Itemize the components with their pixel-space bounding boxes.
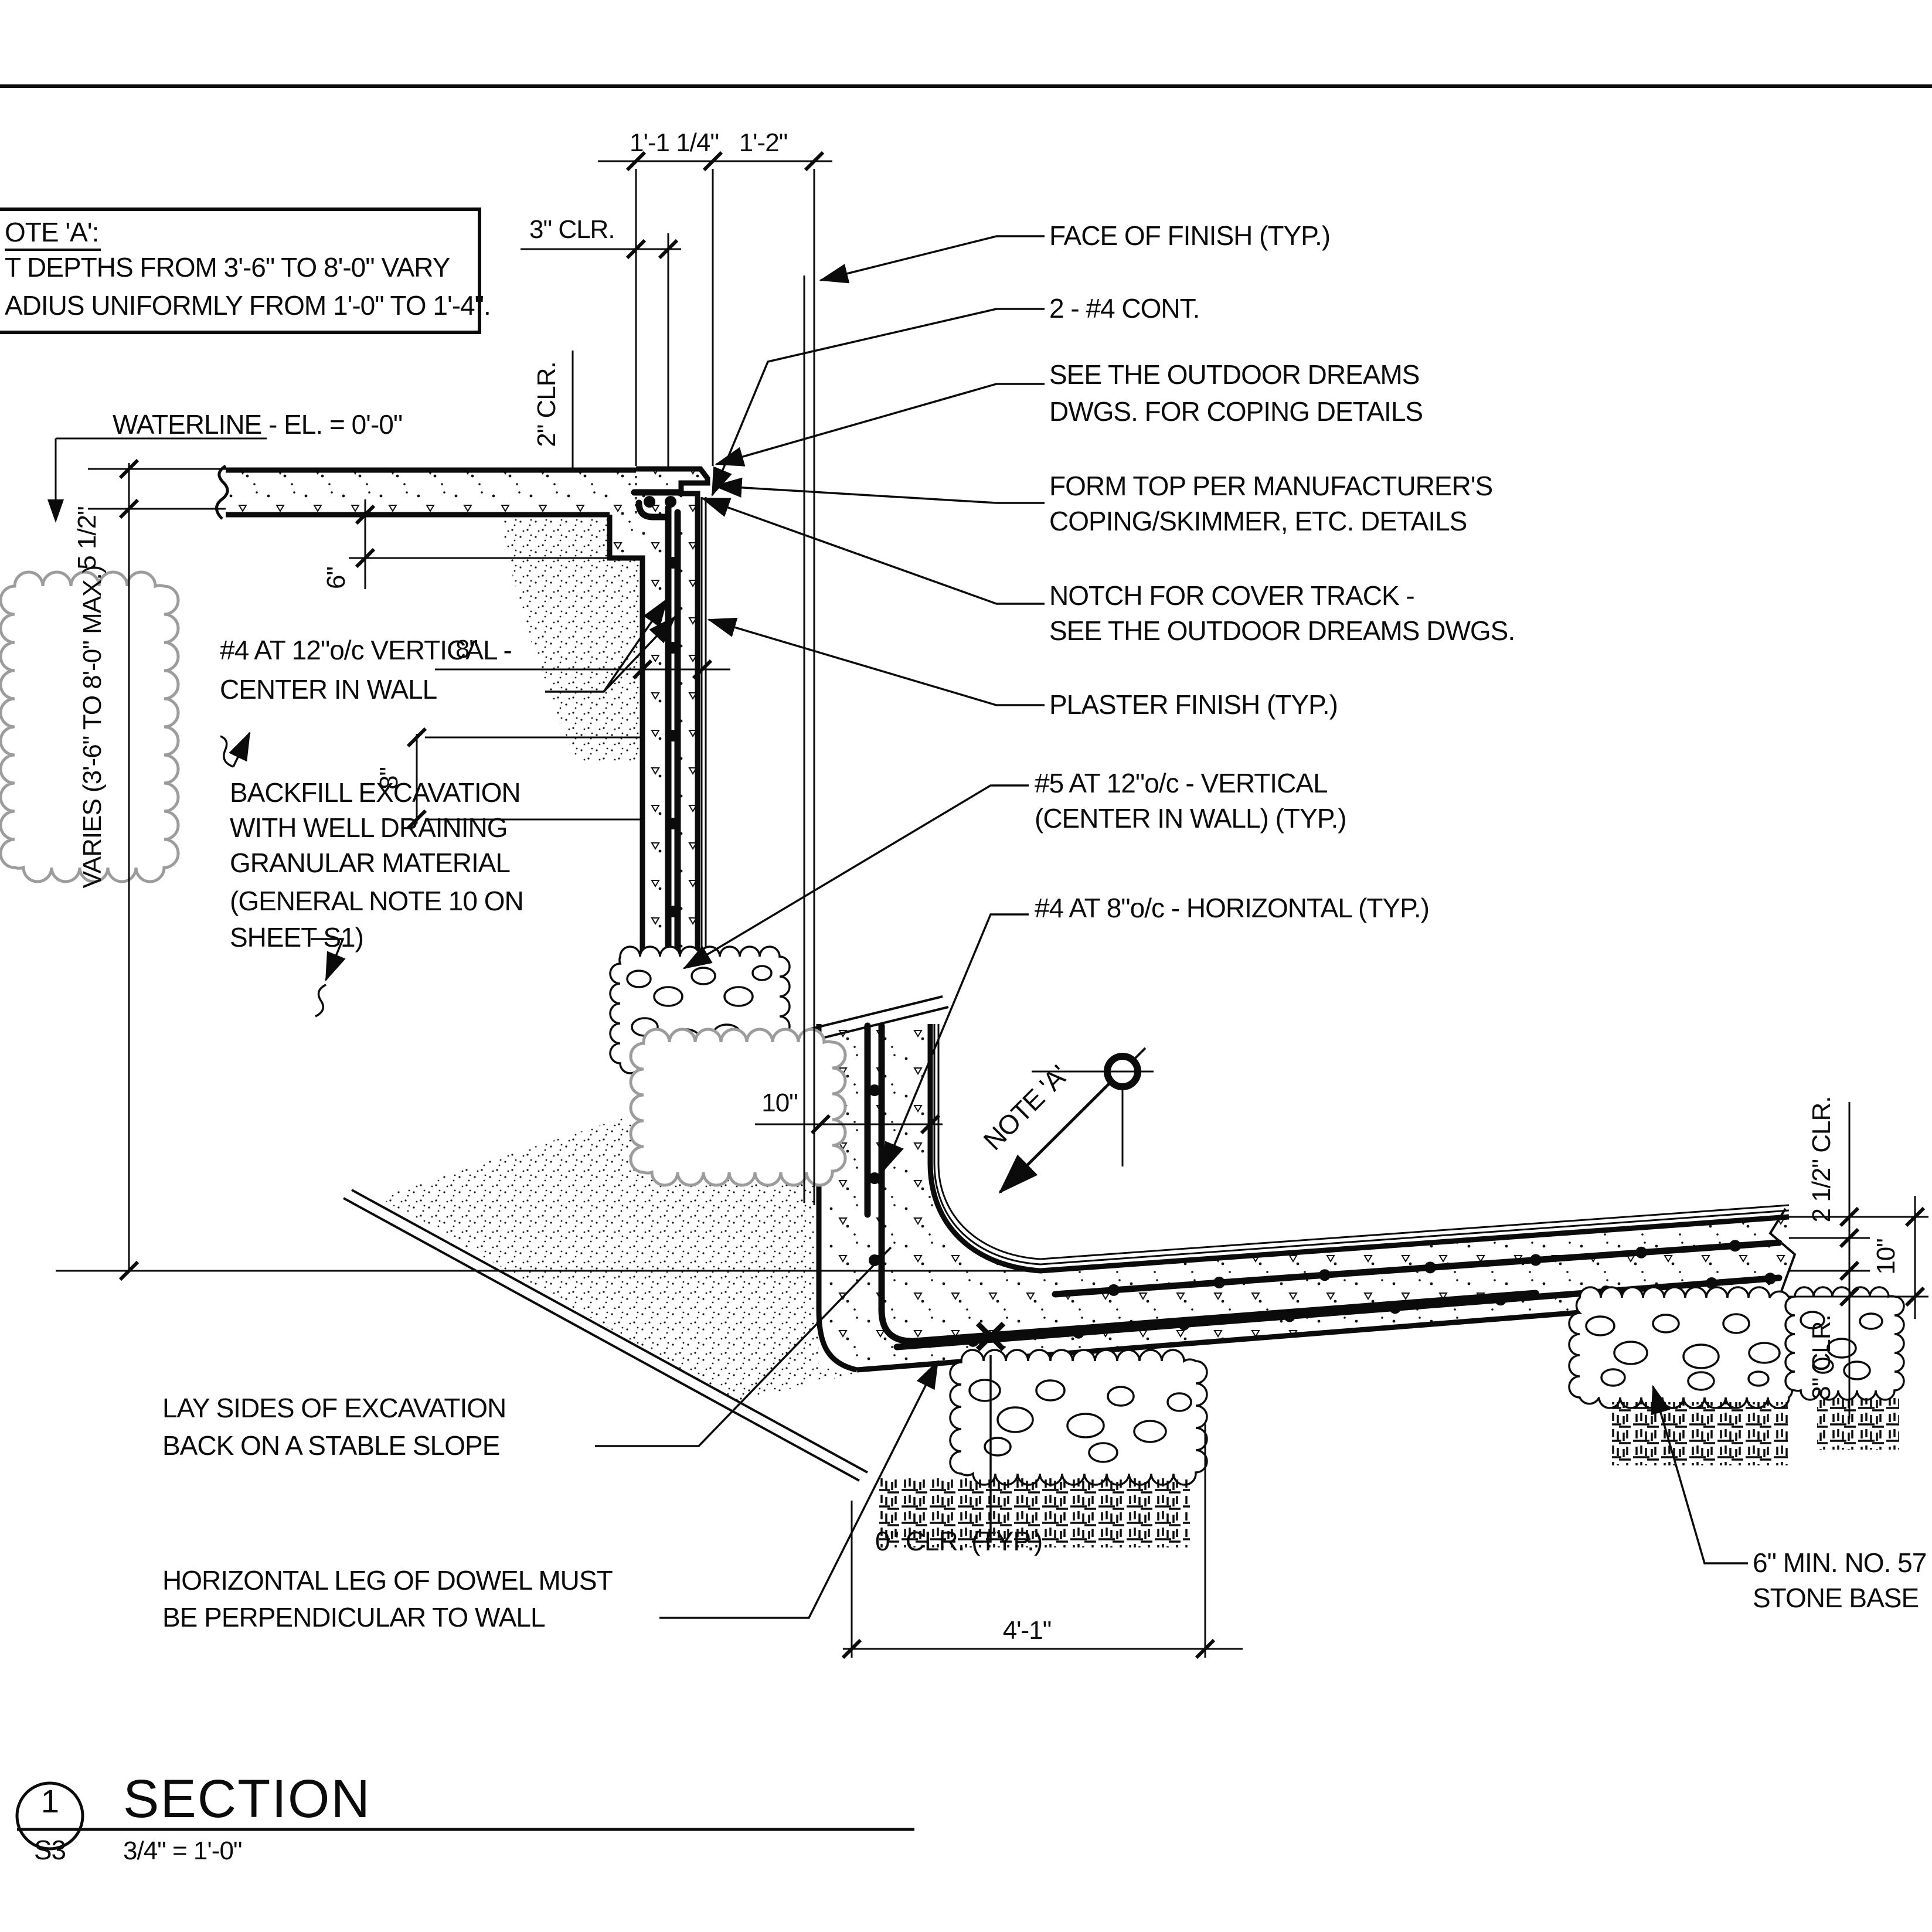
rebar-dot	[1424, 1261, 1436, 1273]
rebar-dot	[869, 1172, 880, 1184]
deck-slab	[226, 470, 636, 515]
leader-backfill-top-tail	[220, 736, 233, 767]
rebar-dot	[667, 906, 679, 917]
rebar-dot	[1530, 1254, 1542, 1266]
callout-face-of-finish: FACE OF FINISH (TYP.)	[1049, 220, 1330, 251]
section-drawing: OTE 'A': T DEPTHS FROM 3'-6" TO 8'-0" VA…	[0, 0, 1932, 1932]
callout-coping-2: DWGS. FOR COPING DETAILS	[1049, 396, 1423, 427]
dim-0clr: 0" CLR. (TYP.)	[875, 1526, 1042, 1556]
callout-notch-2: SEE THE OUTDOOR DREAMS DWGS.	[1049, 615, 1515, 646]
stone	[1134, 1421, 1166, 1442]
leader-cont-bars	[712, 309, 1045, 495]
waterline-arrow-icon	[47, 499, 64, 523]
callout-notch-1: NOTCH FOR COVER TRACK -	[1049, 580, 1414, 611]
callout-lay-2: BACK ON A STABLE SLOPE	[162, 1430, 499, 1461]
rebar-dot	[1635, 1247, 1647, 1258]
dim-top-right: 1'-2"	[739, 128, 788, 157]
stone	[1749, 1372, 1768, 1386]
subgrade-hatch-3	[1817, 1398, 1899, 1450]
dim-varies: VARIES (3'-6" TO 8'-0" MAX.)	[78, 566, 107, 889]
rebar-dot	[665, 496, 676, 508]
stone	[627, 971, 651, 987]
note-box-line1: OTE 'A':	[5, 217, 98, 247]
callout-note-a: NOTE 'A'	[977, 1059, 1074, 1156]
leader-vert5	[684, 785, 1029, 968]
subgrade-hatch-2	[1612, 1402, 1788, 1465]
leader-face-of-finish	[821, 236, 1045, 280]
rebar-dot	[967, 1335, 979, 1347]
stone	[654, 987, 682, 1006]
rebar-dot	[1073, 1327, 1084, 1339]
callout-backfill-1: BACKFILL EXCAVATION	[230, 777, 521, 808]
dim-top-left: 1'-1 1/4"	[630, 128, 719, 157]
rebar-dot	[644, 496, 655, 508]
title-block: 1 S3 SECTION 3/4" = 1'-0"	[17, 1769, 914, 1865]
rebar-dot	[1213, 1277, 1225, 1288]
dim-waterline: WATERLINE - EL. = 0'-0"	[113, 409, 402, 440]
stone	[1614, 1342, 1647, 1364]
rebar-dot	[667, 557, 679, 569]
callout-vert5-2: (CENTER IN WALL) (TYP.)	[1035, 803, 1346, 834]
dim-2clr: 2" CLR.	[532, 362, 561, 447]
stone	[1683, 1345, 1719, 1368]
stone	[1089, 1443, 1117, 1462]
callout-stone-2: STONE BASE	[1753, 1583, 1919, 1613]
callout-backfill-2: WITH WELL DRAINING	[230, 812, 508, 843]
callout-vert5-1: #5 AT 12"o/c - VERTICAL	[1035, 768, 1328, 798]
stone	[1168, 1393, 1191, 1411]
section-title: SECTION	[123, 1769, 371, 1829]
dim-10-slab: 10"	[1872, 1239, 1900, 1275]
rebar-dot	[869, 1084, 880, 1096]
leader-backfill-top	[233, 733, 250, 767]
stone	[1844, 1362, 1870, 1379]
dim-2half-clr: 2 1/2" CLR.	[1807, 1097, 1836, 1223]
rebar-dot	[1389, 1302, 1401, 1314]
rebar-dot	[1108, 1284, 1120, 1296]
dim-5half: 5 1/2"	[73, 506, 101, 569]
callout-vert4-1: #4 AT 12"o/c VERTICAL -	[220, 635, 512, 665]
leader-plaster	[709, 620, 1045, 705]
stone	[970, 1380, 1000, 1401]
scale-label: 3/4" = 1'-0"	[123, 1836, 242, 1865]
stone	[753, 966, 771, 980]
rebar-dot	[1764, 1273, 1776, 1284]
stone	[1036, 1380, 1064, 1400]
rebar-dot	[1729, 1240, 1741, 1251]
detail-number: 1	[41, 1783, 59, 1819]
callout-backfill-5: SHEET S1)	[230, 922, 363, 953]
callout-backfill-3: GRANULAR MATERIAL	[230, 848, 510, 878]
rebar-dot	[1178, 1319, 1190, 1331]
stone	[1723, 1314, 1749, 1333]
stone	[1586, 1317, 1614, 1335]
stone	[1860, 1314, 1882, 1329]
stone	[1067, 1414, 1104, 1437]
callout-coping-1: SEE THE OUTDOOR DREAMS	[1049, 359, 1419, 390]
note-box-line2: T DEPTHS FROM 3'-6" TO 8'-0" VARY	[5, 252, 450, 283]
callout-form-top-1: FORM TOP PER MANUFACTURER'S	[1049, 471, 1492, 501]
stone	[1108, 1387, 1134, 1406]
leader-form-top	[715, 486, 1045, 503]
rebar-dot	[667, 642, 679, 654]
stone	[1688, 1372, 1714, 1390]
sheet-ref: S3	[34, 1835, 66, 1865]
callout-plaster: PLASTER FINISH (TYP.)	[1049, 689, 1338, 720]
rebar-dot	[1495, 1294, 1506, 1305]
callout-vert4-2: CENTER IN WALL	[220, 674, 437, 705]
stone	[1653, 1315, 1679, 1332]
leader-backfill-bottom-tail	[315, 985, 326, 1016]
leader-coping	[716, 384, 1045, 464]
rebar-dot	[667, 730, 679, 741]
callout-dowel-2: BE PERPENDICULAR TO WALL	[162, 1602, 545, 1632]
stone	[998, 1407, 1033, 1432]
callout-horiz4: #4 AT 8"o/c - HORIZONTAL (TYP.)	[1035, 893, 1429, 923]
revision-cloud-wall	[631, 1029, 845, 1185]
callout-stone-1: 6" MIN. NO. 57	[1753, 1547, 1926, 1578]
rebar-dot	[1284, 1310, 1295, 1322]
callout-cont-bars: 2 - #4 CONT.	[1049, 293, 1199, 324]
note-box: OTE 'A': T DEPTHS FROM 3'-6" TO 8'-0" VA…	[0, 209, 491, 332]
leader-notch	[702, 498, 1045, 604]
callout-lay-1: LAY SIDES OF EXCAVATION	[162, 1393, 506, 1423]
dim-10-wall: 10"	[761, 1089, 798, 1117]
rebar-dot	[1319, 1269, 1331, 1281]
callout-form-top-2: COPING/SKIMMER, ETC. DETAILS	[1049, 506, 1467, 536]
rebar-dot	[667, 818, 679, 829]
note-box-line3: ADIUS UNIFORMLY FROM 1'-0" TO 1'-4".	[5, 290, 491, 321]
stone	[985, 1438, 1011, 1455]
stone	[692, 968, 715, 984]
callout-backfill-4: (GENERAL NOTE 10 ON	[230, 886, 523, 916]
stone	[1749, 1343, 1780, 1363]
drawing-sheet: OTE 'A': T DEPTHS FROM 3'-6" TO 8'-0" VA…	[0, 0, 1932, 1932]
stone	[724, 987, 753, 1006]
stone	[1601, 1369, 1625, 1386]
dim-4-1: 4'-1"	[1003, 1616, 1052, 1645]
callout-dowel-1: HORIZONTAL LEG OF DOWEL MUST	[162, 1565, 613, 1596]
dim-6: 6"	[322, 567, 351, 589]
dim-3clr-bottom: 3" CLR.	[1807, 1315, 1836, 1400]
dim-3clr-top: 3" CLR.	[529, 215, 615, 244]
